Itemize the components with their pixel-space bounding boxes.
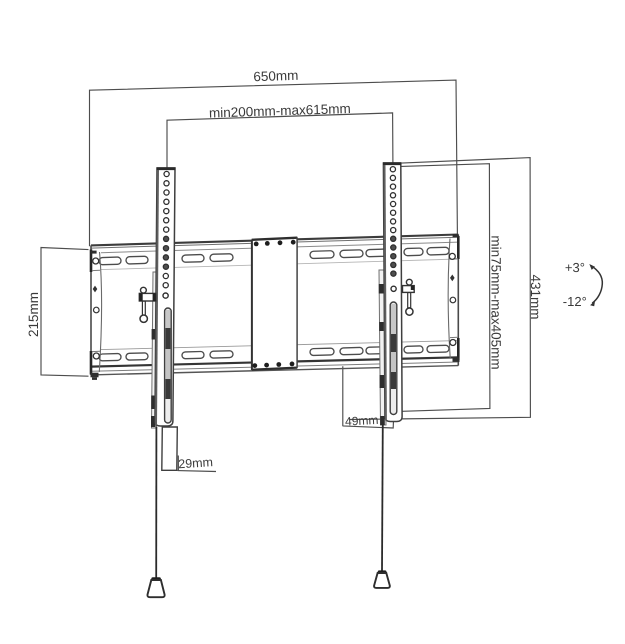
svg-text:215mm: 215mm: [26, 292, 41, 337]
svg-text:-12°: -12°: [563, 294, 587, 309]
svg-text:+3°: +3°: [565, 260, 585, 275]
svg-text:49mm: 49mm: [345, 413, 379, 429]
svg-text:431mm: 431mm: [528, 274, 543, 319]
svg-text:29mm: 29mm: [178, 455, 214, 471]
svg-text:650mm: 650mm: [253, 68, 298, 84]
svg-text:min75mm-max405mm: min75mm-max405mm: [488, 235, 503, 369]
